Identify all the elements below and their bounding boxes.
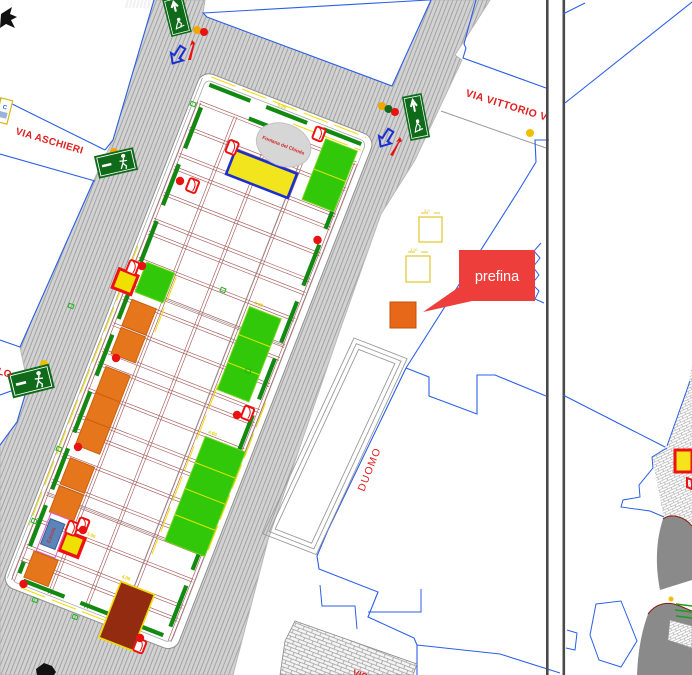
svg-text:3.0: 3.0 [424,208,430,213]
svg-text:prefina: prefina [475,269,520,285]
svg-text:3.00: 3.00 [410,247,419,252]
